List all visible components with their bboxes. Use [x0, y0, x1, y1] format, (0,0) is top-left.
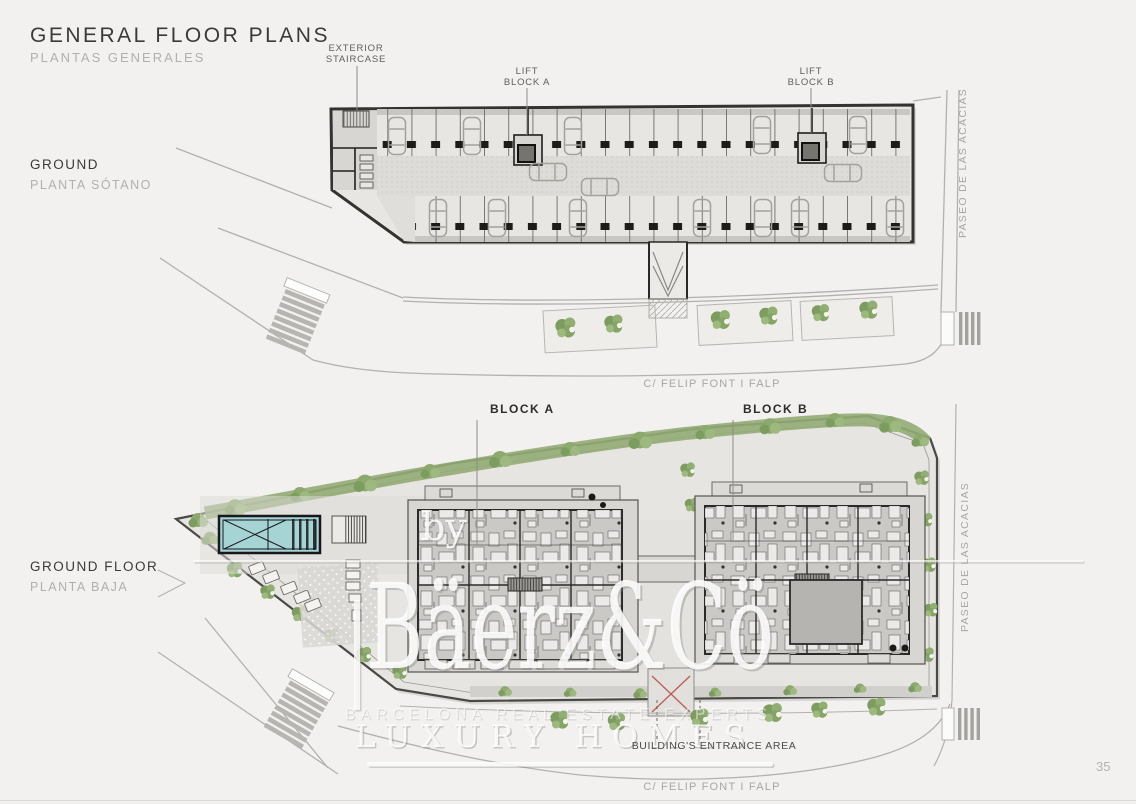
- annotation-exterior-staircase-line1: EXTERIOR: [329, 43, 384, 54]
- page-number: 35: [1096, 759, 1110, 774]
- label-block-b: BLOCK B: [743, 402, 808, 416]
- label-block-a: BLOCK A: [490, 402, 555, 416]
- groundfloor-label: GROUND FLOOR: [30, 559, 158, 574]
- driving-aisle: [377, 156, 910, 196]
- basement-label: GROUND: [30, 157, 99, 172]
- annotation-lift-block-a-line1: LIFT: [516, 66, 539, 77]
- annotation-lift-block-b-line1: LIFT: [800, 66, 823, 77]
- basement-sublabel: PLANTA SÓTANO: [30, 177, 152, 192]
- swimming-pool: [219, 516, 320, 553]
- basement-plan: [331, 66, 916, 318]
- page-title: GENERAL FLOOR PLANS: [30, 24, 330, 47]
- crosswalk-top-right: [941, 312, 980, 345]
- entrance-area-label: BUILDING'S ENTRANCE AREA: [632, 740, 797, 752]
- annotation-lift-block-b-line2: BLOCK B: [788, 77, 835, 88]
- street-felip-bottom: C/ FELIP FONT I FALP: [643, 781, 780, 793]
- parking-ramp: [649, 242, 687, 318]
- pool-stairs: [332, 516, 366, 543]
- street-paseo-top: PASEO DE LAS ACACIAS: [957, 88, 969, 238]
- watermark-bar: [354, 600, 360, 710]
- watermark-brand: Bäerz&Cö: [366, 558, 774, 696]
- exterior-staircase: [343, 111, 369, 127]
- crosswalk-top-left: [263, 278, 330, 355]
- groundfloor-sublabel: PLANTA BAJA: [30, 580, 128, 594]
- annotation-lift-block-a-line2: BLOCK A: [504, 77, 550, 88]
- page-subtitle: PLANTAS GENERALES: [30, 50, 205, 65]
- street-felip-top: C/ FELIP FONT I FALP: [643, 378, 780, 390]
- watermark-by: by: [421, 505, 467, 549]
- street-paseo-bottom: PASEO DE LAS ACACIAS: [959, 482, 971, 632]
- watermark-rule-bottom: [367, 762, 773, 767]
- annotation-exterior-staircase-line2: STAIRCASE: [326, 54, 386, 65]
- brochure-page: by by Bäerz&Cö Bäerz&Cö BARCELONA REAL E…: [0, 0, 1136, 804]
- floor-plan-drawing: by by Bäerz&Cö Bäerz&Cö BARCELONA REAL E…: [0, 0, 1136, 804]
- crosswalk-bottom-right: [942, 708, 980, 740]
- parking-stalls-top: [377, 109, 910, 156]
- crosswalk-bottom-left: [260, 669, 334, 749]
